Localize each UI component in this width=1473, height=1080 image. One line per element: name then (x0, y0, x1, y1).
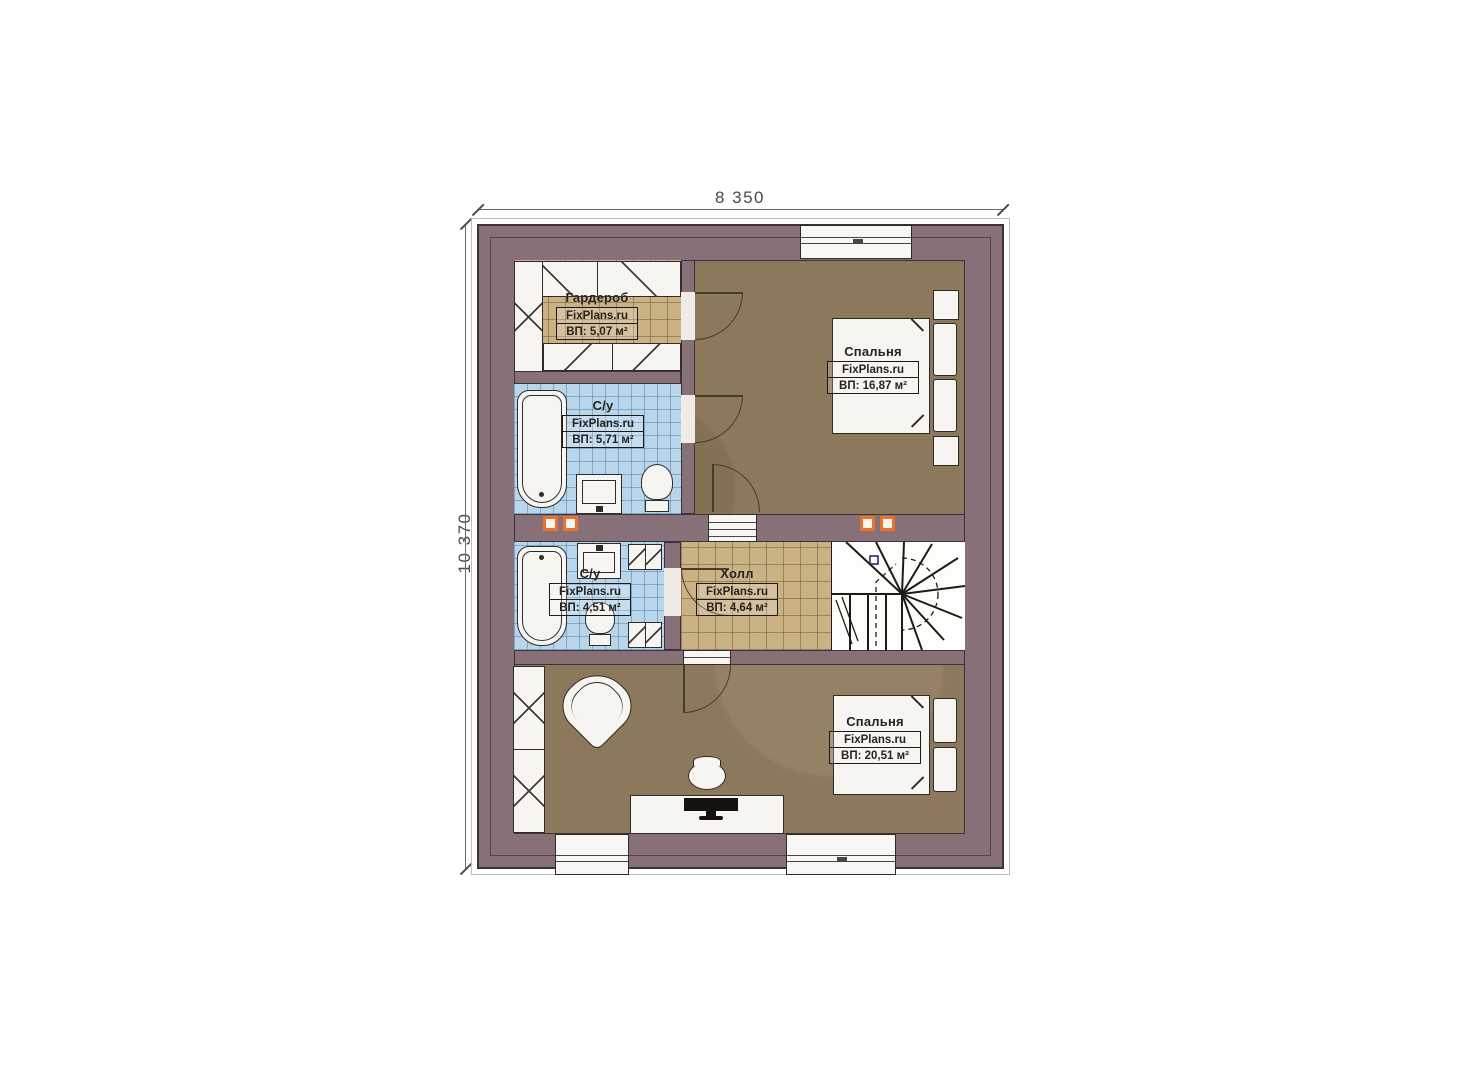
staircase (831, 542, 965, 650)
room-label-bedroom-bottom: Спальня FixPlans.ru ВП: 20,51 м² (817, 714, 933, 764)
room-name: Гардероб (537, 290, 657, 305)
room-name: С/у (556, 398, 650, 413)
watermark-text: FixPlans.ru (830, 732, 920, 747)
wardrobe-cabinet (513, 666, 545, 833)
room-name: Спальня (817, 714, 933, 729)
room-name: С/у (543, 566, 637, 581)
wardrobe-cell (514, 750, 544, 832)
window-latch (853, 239, 863, 243)
sink-basin (582, 480, 616, 504)
watermark-text: FixPlans.ru (697, 584, 777, 599)
window-frame-line (801, 237, 911, 238)
room-label-bathroom-top: С/у FixPlans.ru ВП: 5,71 м² (556, 398, 650, 448)
wardrobe-cell (514, 667, 544, 750)
pillow (933, 323, 957, 376)
office-chair-back (693, 756, 721, 766)
sink-tap (596, 545, 603, 551)
monitor-base (699, 816, 723, 820)
closet-cell (613, 344, 681, 370)
toilet-bowl (641, 464, 673, 500)
watermark-text: FixPlans.ru (557, 308, 637, 323)
floor-plan-canvas: 8 350 10 370 Гардероб FixPlans.ru ВП: 5,… (0, 0, 1473, 1080)
room-name: Спальня (815, 344, 931, 359)
bathtub-drain (539, 492, 544, 497)
window-frame-line (801, 243, 911, 244)
closet-cell (544, 344, 613, 370)
door-opening (681, 395, 695, 443)
nightstand (933, 436, 959, 466)
window-frame-line (556, 855, 628, 856)
sink (576, 474, 622, 514)
cabinet (628, 622, 662, 648)
watermark-box: FixPlans.ru ВП: 5,71 м² (562, 415, 644, 448)
watermark-text: FixPlans.ru (550, 584, 630, 599)
window-top (800, 225, 912, 259)
door-opening (664, 568, 681, 616)
watermark-box: FixPlans.ru ВП: 20,51 м² (829, 731, 921, 764)
toilet-tank (589, 634, 611, 646)
door-opening (681, 292, 695, 340)
threshold-line (709, 536, 756, 537)
cabinet-cell (646, 545, 662, 569)
landing-threshold (708, 514, 757, 542)
room-label-hall: Холл FixPlans.ru ВП: 4,64 м² (689, 566, 785, 616)
vent-shaft (860, 516, 875, 531)
partition-wall (514, 371, 681, 384)
dimension-width-line (477, 209, 1004, 210)
threshold-line (684, 657, 730, 658)
pillow (933, 698, 957, 743)
cabinet-cell (646, 623, 662, 647)
door-threshold (683, 650, 731, 665)
room-area: ВП: 4,64 м² (697, 599, 777, 615)
room-area: ВП: 16,87 м² (828, 377, 918, 393)
pillow (933, 747, 957, 792)
pillow (933, 379, 957, 432)
watermark-box: FixPlans.ru ВП: 4,51 м² (549, 583, 631, 616)
threshold-line (709, 522, 756, 523)
vent-shaft (543, 516, 558, 531)
room-label-bathroom-middle: С/у FixPlans.ru ВП: 4,51 м² (543, 566, 637, 616)
room-label-bedroom-top: Спальня FixPlans.ru ВП: 16,87 м² (815, 344, 931, 394)
closet-bottom (543, 343, 681, 371)
watermark-box: FixPlans.ru ВП: 16,87 м² (827, 361, 919, 394)
dimension-height-line (465, 224, 466, 869)
vent-shaft (880, 516, 895, 531)
window-bottom-left (555, 834, 629, 875)
watermark-text: FixPlans.ru (563, 416, 643, 431)
watermark-box: FixPlans.ru ВП: 5,07 м² (556, 307, 638, 340)
room-label-wardrobe: Гардероб FixPlans.ru ВП: 5,07 м² (537, 290, 657, 340)
nightstand (933, 290, 959, 320)
toilet-tank (645, 500, 669, 512)
window-frame-line (556, 861, 628, 862)
threshold-line (709, 529, 756, 530)
window-frame-line (787, 855, 895, 856)
floor-plan: Гардероб FixPlans.ru ВП: 5,07 м² С/у Fix… (477, 224, 1004, 869)
middle-wall (514, 650, 965, 665)
room-area: ВП: 5,07 м² (557, 323, 637, 339)
room-area: ВП: 5,71 м² (563, 431, 643, 447)
stairs-start-marker (870, 556, 878, 564)
window-frame-line (787, 861, 895, 862)
room-area: ВП: 4,51 м² (550, 599, 630, 615)
watermark-box: FixPlans.ru ВП: 4,64 м² (696, 583, 778, 616)
office-chair (688, 762, 726, 790)
sink-tap (596, 506, 603, 512)
room-area: ВП: 20,51 м² (830, 747, 920, 763)
dimension-width-label: 8 350 (677, 188, 803, 208)
monitor (684, 798, 738, 811)
watermark-text: FixPlans.ru (828, 362, 918, 377)
vent-shaft (563, 516, 578, 531)
window-bottom-right (786, 834, 896, 875)
window-latch (837, 857, 847, 861)
staircase-drawing (832, 542, 966, 650)
cabinet-cell (629, 623, 646, 647)
room-name: Холл (689, 566, 785, 581)
bathtub-drain (539, 555, 544, 560)
